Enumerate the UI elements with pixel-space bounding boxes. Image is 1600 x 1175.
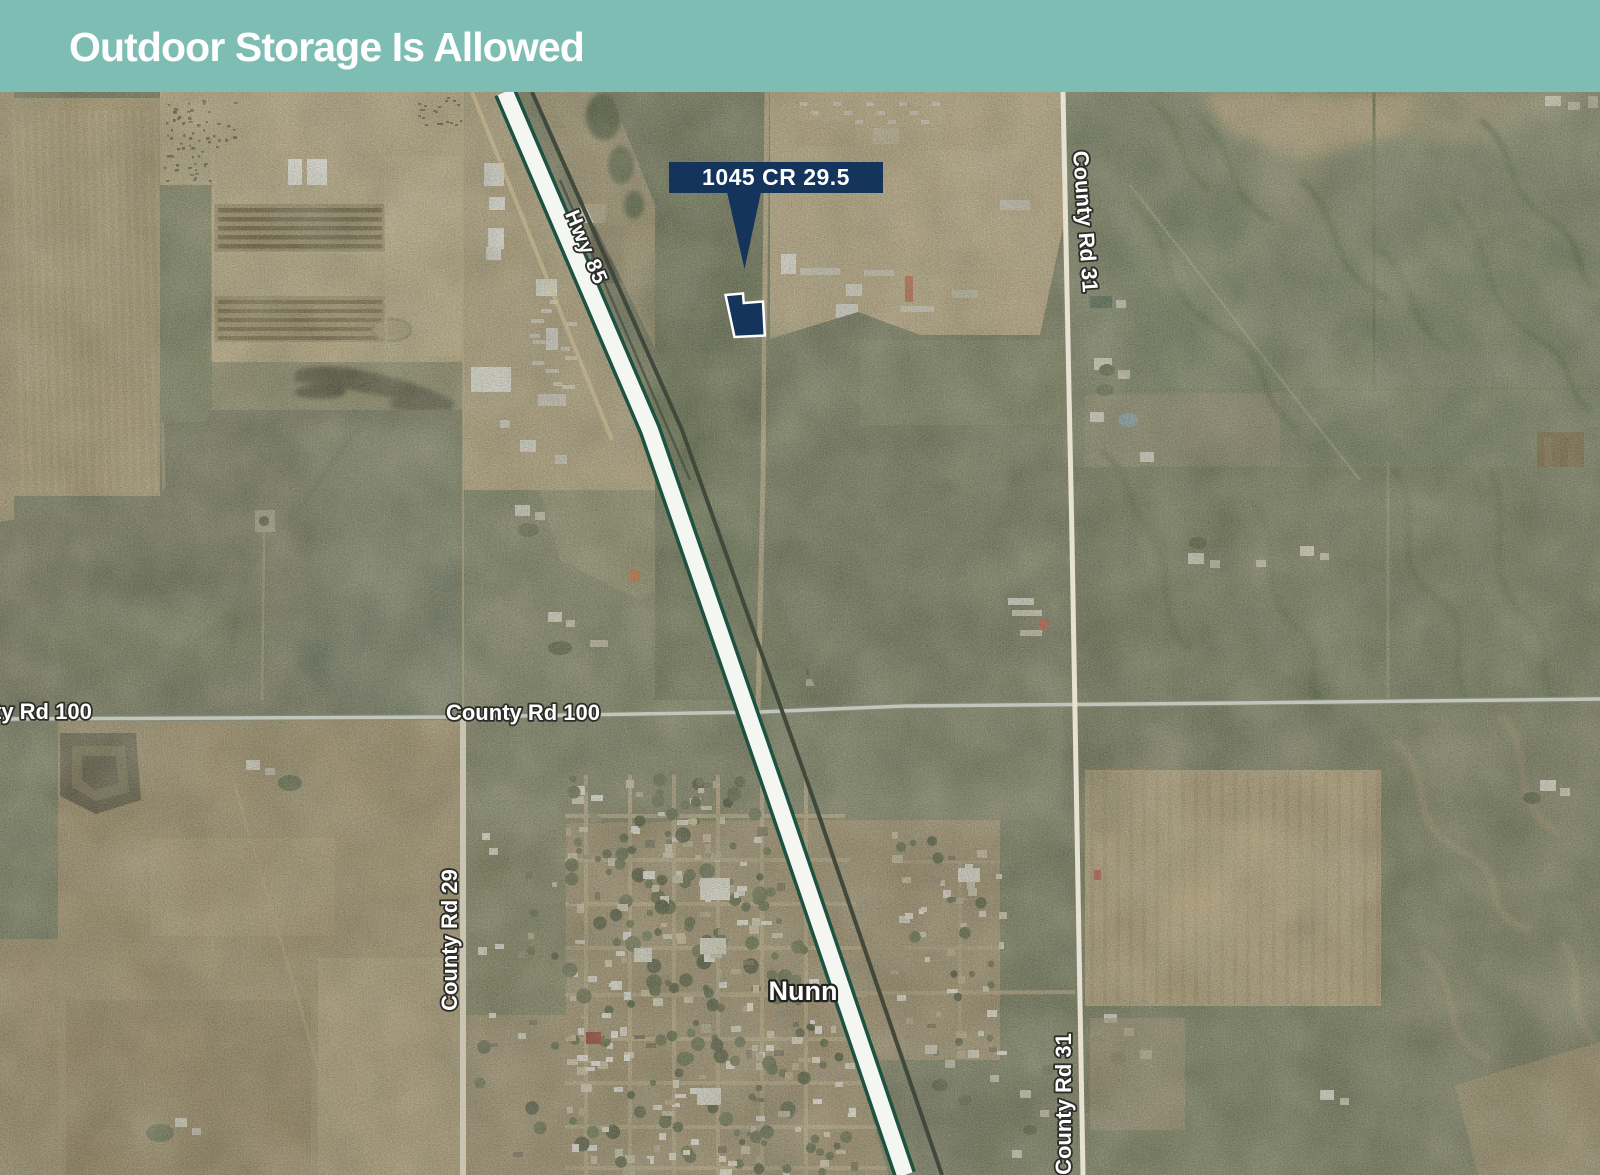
svg-text:Outdoor Storage Is Allowed: Outdoor Storage Is Allowed <box>69 24 584 70</box>
svg-text:ty Rd 100: ty Rd 100 <box>0 699 92 724</box>
svg-text:County Rd 31: County Rd 31 <box>1051 1033 1076 1175</box>
svg-text:County Rd 29: County Rd 29 <box>437 869 462 1011</box>
svg-text:County Rd 100: County Rd 100 <box>446 700 600 725</box>
svg-text:Nunn: Nunn <box>769 976 838 1006</box>
svg-text:1045 CR 29.5: 1045 CR 29.5 <box>702 164 850 190</box>
